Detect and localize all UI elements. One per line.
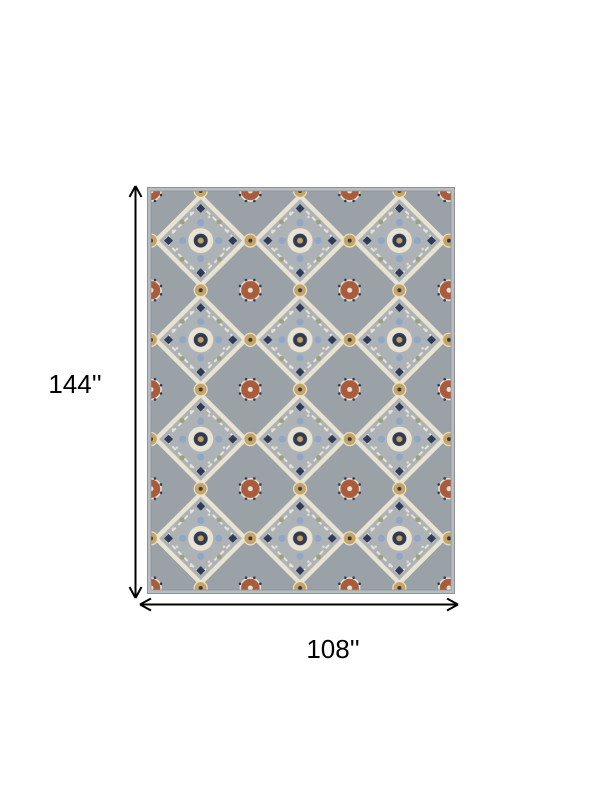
rug-field: [151, 191, 451, 590]
rug-pattern-graphic: [147, 187, 455, 594]
width-dimension-arrow: [140, 599, 458, 611]
rug-image: [147, 187, 455, 594]
width-dimension-label: 108'': [288, 636, 378, 662]
height-dimension-label: 144'': [30, 371, 120, 397]
height-dimension-arrow: [130, 186, 142, 598]
product-dimension-diagram: 144'' 108'': [0, 0, 600, 785]
